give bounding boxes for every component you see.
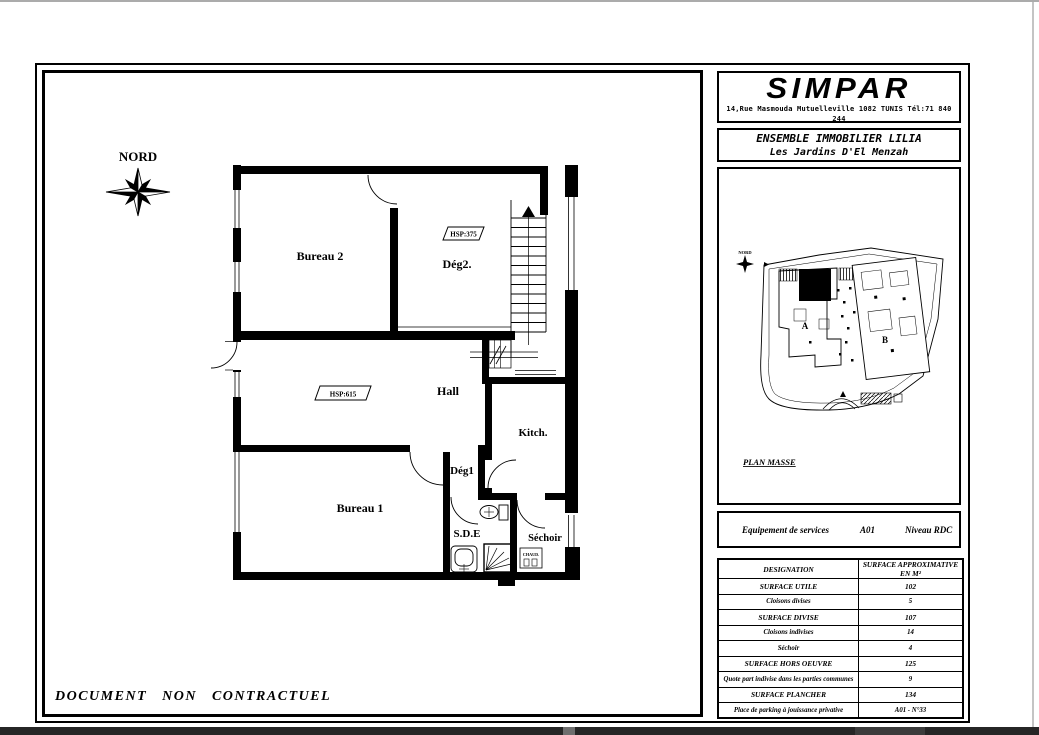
table-row: Place de parking à jouissance privative … — [718, 703, 963, 719]
header-designation: DESIGNATION — [718, 559, 859, 579]
shower-icon — [484, 544, 512, 572]
room-label-chaud: CHAUD. — [523, 552, 539, 557]
project-title: ENSEMBLE IMMOBILIER LILIA — [719, 132, 959, 146]
level-label: Niveau RDC — [905, 525, 952, 535]
highlighted-unit — [799, 269, 831, 301]
project-title-box: ENSEMBLE IMMOBILIER LILIA Les Jardins D'… — [717, 128, 961, 162]
surface-table: DESIGNATION SURFACE APPROXIMATIVE EN M² … — [717, 558, 964, 719]
deg2-hsp-tag: HSP:375 — [450, 231, 477, 239]
company-logo: SIMPAR — [709, 74, 968, 104]
disclaimer-text: DOCUMENT NON CONTRACTUEL — [55, 689, 331, 705]
room-labels: Bureau 2 Dég2. Hall Kitch. Dég1 Bureau 1… — [297, 249, 563, 557]
unit-number: A01 — [860, 525, 875, 535]
room-label-deg1: Dég1 — [450, 465, 474, 477]
windows — [233, 190, 578, 547]
room-label-bureau2: Bureau 2 — [297, 249, 344, 263]
door-arcs — [211, 167, 545, 528]
equipment-label: Equipement de services — [742, 525, 829, 535]
plan-sheet-page: NORD — [0, 0, 1039, 735]
room-label-kitchen: Kitch. — [518, 427, 547, 439]
company-address: 14,Rue Masmouda Mutuelleville 1082 TUNIS… — [719, 104, 959, 124]
table-header-row: DESIGNATION SURFACE APPROXIMATIVE EN M² — [718, 559, 963, 579]
table-row: Cloisons indivises 14 — [718, 625, 963, 641]
compass-rose-icon: NORD — [100, 146, 176, 222]
floor-plan-drawing: HSP:375 HSP:615 Bureau 2 Dég2. Hall Kitc… — [205, 150, 595, 590]
room-label-sechoir: Séchoir — [528, 533, 562, 544]
window-top-edge — [0, 0, 1039, 2]
company-header-box: SIMPAR 14,Rue Masmouda Mutuelleville 108… — [717, 71, 961, 123]
building-b — [852, 258, 930, 380]
room-label-bureau1: Bureau 1 — [337, 501, 384, 515]
table-row: SURFACE HORS OEUVRE 125 — [718, 656, 963, 672]
washbasin-icon — [451, 546, 477, 574]
window-right-edge — [1032, 2, 1034, 727]
room-label-sde: S.D.E — [454, 528, 481, 540]
stair-up-arrow-icon — [522, 206, 535, 217]
bottom-bar-segment — [855, 727, 925, 735]
project-subtitle: Les Jardins D'El Menzah — [719, 146, 959, 159]
room-label-deg2: Dég2. — [443, 257, 472, 271]
svg-text:NORD: NORD — [738, 250, 752, 255]
site-plan-drawing: NORD — [719, 169, 959, 503]
table-row: SURFACE DIVISE 107 — [718, 610, 963, 626]
boiler-icon — [520, 548, 542, 568]
equipment-box: Equipement de services A01 Niveau RDC — [717, 511, 961, 548]
table-row: Cloisons divises 5 — [718, 594, 963, 610]
building-a-label: A — [802, 321, 809, 331]
bottom-bar-segment — [563, 727, 575, 735]
building-b-label: B — [882, 335, 888, 345]
site-plan-caption: PLAN MASSE — [743, 457, 796, 467]
table-row: SURFACE PLANCHER 134 — [718, 687, 963, 703]
north-label: NORD — [119, 149, 157, 164]
room-label-hall: Hall — [437, 384, 460, 398]
table-row: SURFACE UTILE 102 — [718, 579, 963, 595]
walls — [233, 165, 580, 586]
toilet-icon — [480, 505, 508, 520]
header-surface: SURFACE APPROXIMATIVE EN M² — [859, 559, 964, 579]
window-bottom-bar — [0, 727, 1039, 735]
table-row: Quote part indivise dans les parties com… — [718, 672, 963, 688]
staircase — [398, 200, 556, 375]
table-row: Séchoir 4 — [718, 641, 963, 657]
hall-hsp-tag: HSP:615 — [330, 391, 357, 399]
site-entrance — [823, 391, 902, 410]
